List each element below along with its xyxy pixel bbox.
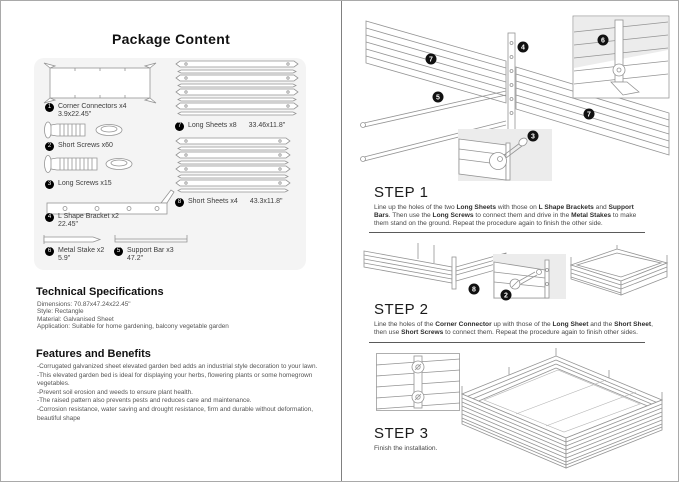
step3-description: Finish the installation. [374,445,646,453]
step1-description: Line up the holes of the two Long Sheets… [374,204,646,229]
short-screw-drawing [43,121,139,141]
item-label: Long Screws x15 [58,180,112,188]
item-number-badge: 5 [114,247,123,256]
package-item: 6 Metal Stake x25.9" [45,247,104,263]
svg-text:4: 4 [521,44,525,51]
step2-heading: STEP 2 [374,301,428,318]
callout-long-sheet-left: 7 [426,54,437,65]
metal-stake-drawing [41,235,105,247]
support-bar-drawing [113,235,189,247]
callout-long-screw: 3 [528,131,539,142]
svg-text:8: 8 [472,286,476,293]
item-number-badge: 6 [45,247,54,256]
item-label: Corner Connectors x4 [58,103,126,111]
item-size: 47.2" [127,255,174,263]
step1-heading: STEP 1 [374,184,428,201]
step1-diagram: 7 4 5 7 6 3 [348,5,674,181]
step3-heading: STEP 3 [374,425,428,442]
item-number-badge: 3 [45,180,54,189]
svg-text:3: 3 [531,133,535,140]
long-sheets-drawing [173,61,301,119]
package-item: 1 Corner Connectors x43.9x22.45" [45,103,126,119]
svg-text:7: 7 [587,111,591,118]
spec-line: Dimensions: 70.87x47.24x22.45" [37,301,229,308]
callout-bracket: 4 [518,42,529,53]
tech-specs-list: Dimensions: 70.87x47.24x22.45" Style: Re… [37,301,229,330]
item-size: 22.45" [58,221,119,229]
short-sheets-drawing [173,138,293,196]
panel-divider [341,1,342,482]
features-heading: Features and Benefits [36,348,151,360]
svg-text:5: 5 [436,94,440,101]
package-item: 4 L Shape Bracket x222.45" [45,213,119,229]
package-item: 8 Short Sheets x443.3x11.8" [175,198,283,207]
features-list: -Corrugated galvanized sheet elevated ga… [37,363,337,423]
item-number-badge: 8 [175,198,184,207]
callout-short-screw: 2 [501,290,512,301]
corner-connector-drawing [43,63,157,105]
package-item: 7 Long Sheets x833.46x11.8" [175,122,285,131]
stake-detail-inset [573,16,669,98]
spec-line: Material: Galvanised Sheet [37,316,229,323]
item-label: Metal Stake x2 [58,247,104,255]
step-divider [369,232,645,233]
item-number-badge: 1 [45,103,54,112]
callout-long-sheet-right: 7 [584,109,595,120]
corner-assembly-illustration [364,243,506,289]
assembled-frame-illustration [571,245,667,295]
item-number-badge: 7 [175,122,184,131]
svg-text:6: 6 [601,37,605,44]
package-item: 2 Short Screws x60 [45,142,113,151]
long-sheet-left-illustration [366,21,506,103]
item-size: 3.9x22.45" [58,111,126,119]
package-item: 3 Long Screws x15 [45,180,112,189]
feature-line: -Corrugated galvanized sheet elevated ga… [37,363,337,372]
feature-line: -Corrosion resistance, water saving and … [37,406,337,423]
callout-corner-assembly: 8 [469,284,480,295]
spec-line: Style: Rectangle [37,308,229,315]
package-item: 5 Support Bar x347.2" [114,247,174,263]
instruction-sheet: Package Content 1 Corner Connectors x43.… [0,0,679,482]
callout-stake: 6 [598,35,609,46]
svg-text:7: 7 [429,56,433,63]
item-label: Short Screws x60 [58,142,113,150]
step2-description: Line the holes of the Corner Connector u… [374,321,660,337]
feature-line: -Prevent soil erosion and weeds to ensur… [37,389,337,398]
callout-support-bar: 5 [433,92,444,103]
item-size: 43.3x11.8" [250,198,283,206]
item-size: 33.46x11.8" [249,122,286,130]
spec-line: Application: Suitable for home gardening… [37,323,229,330]
svg-text:2: 2 [504,292,508,299]
item-number-badge: 2 [45,142,54,151]
tech-specs-heading: Technical Specifications [36,286,164,298]
long-screw-drawing [43,154,147,176]
item-number-badge: 4 [45,213,54,222]
item-size: 5.9" [58,255,104,263]
item-label: Long Sheets x8 [188,122,237,130]
item-label: Support Bar x3 [127,247,174,255]
step2-diagram: 8 2 [356,241,674,303]
item-label: L Shape Bracket x2 [58,213,119,221]
feature-line: -This elevated garden bed is ideal for d… [37,372,337,389]
step3-bracket-inset [376,353,460,411]
page-title: Package Content [1,31,341,47]
item-label: Short Sheets x4 [188,198,238,206]
feature-line: -The raised pattern also prevents pests … [37,397,337,406]
